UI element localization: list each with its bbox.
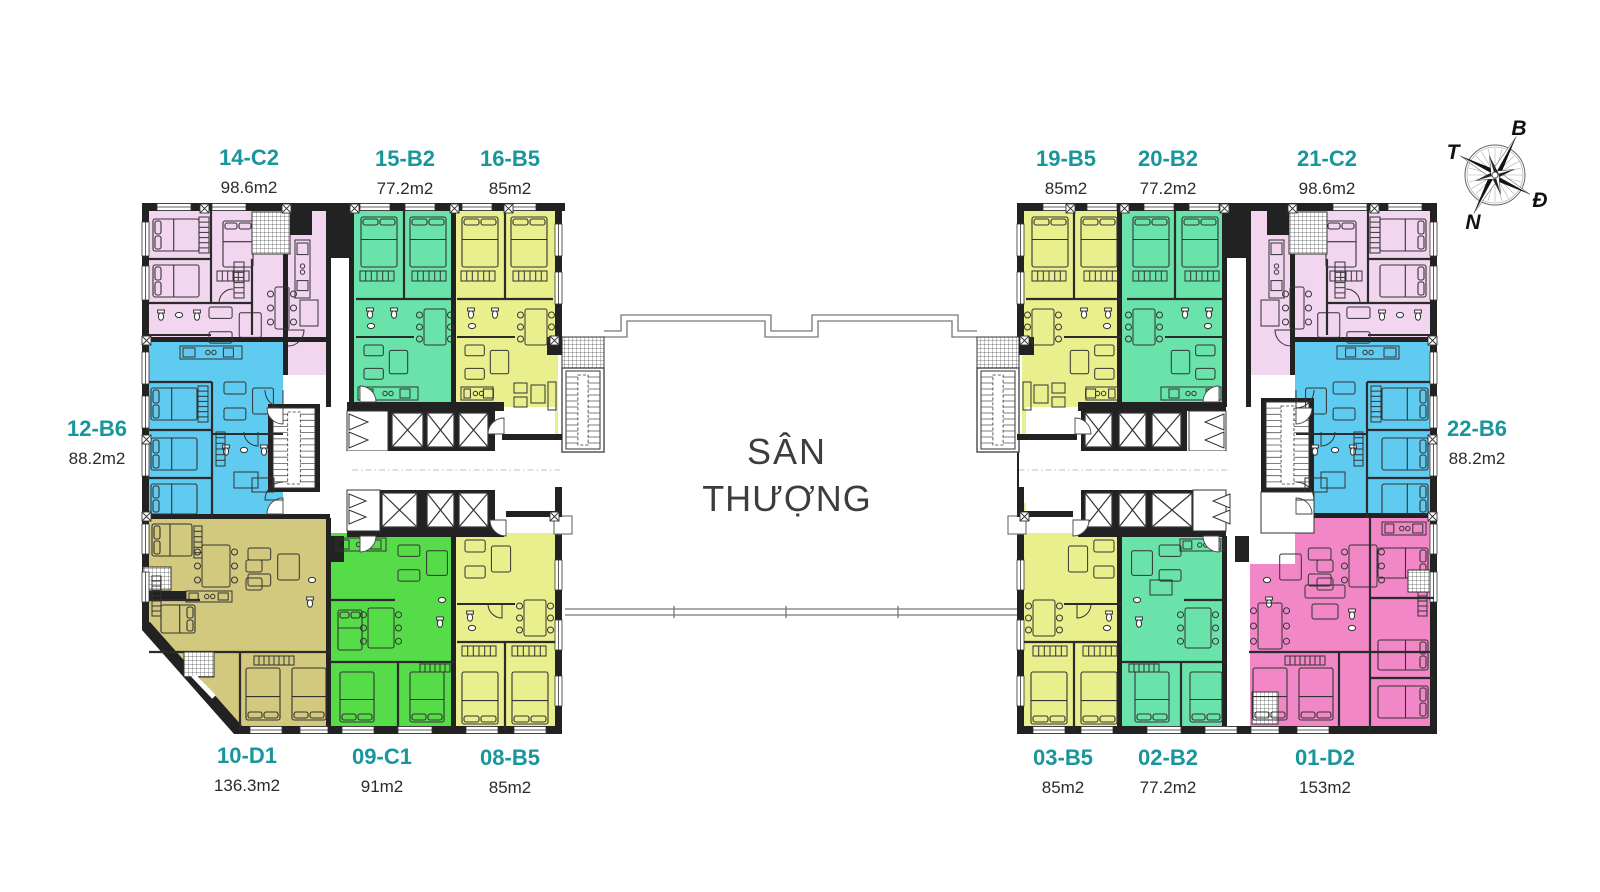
- svg-text:22-B6: 22-B6: [1447, 416, 1507, 441]
- svg-text:14-C2: 14-C2: [219, 145, 279, 170]
- svg-text:88.2m2: 88.2m2: [69, 449, 126, 468]
- svg-text:98.6m2: 98.6m2: [1299, 179, 1356, 198]
- svg-text:85m2: 85m2: [489, 778, 532, 797]
- svg-text:01-D2: 01-D2: [1295, 745, 1355, 770]
- svg-text:21-C2: 21-C2: [1297, 146, 1357, 171]
- svg-text:88.2m2: 88.2m2: [1449, 449, 1506, 468]
- svg-text:THƯỢNG: THƯỢNG: [702, 478, 872, 519]
- svg-text:12-B6: 12-B6: [67, 416, 127, 441]
- svg-text:85m2: 85m2: [1045, 179, 1088, 198]
- svg-text:B: B: [1511, 117, 1526, 140]
- svg-text:77.2m2: 77.2m2: [1140, 179, 1197, 198]
- svg-text:136.3m2: 136.3m2: [214, 776, 280, 795]
- svg-text:08-B5: 08-B5: [480, 745, 540, 770]
- svg-text:N: N: [1465, 211, 1481, 234]
- svg-text:SÂN: SÂN: [747, 431, 827, 472]
- svg-text:T: T: [1447, 141, 1462, 164]
- svg-text:Đ: Đ: [1532, 189, 1547, 212]
- svg-text:03-B5: 03-B5: [1033, 745, 1093, 770]
- svg-text:85m2: 85m2: [489, 179, 532, 198]
- svg-text:77.2m2: 77.2m2: [377, 179, 434, 198]
- svg-text:98.6m2: 98.6m2: [221, 178, 278, 197]
- svg-text:77.2m2: 77.2m2: [1140, 778, 1197, 797]
- svg-text:20-B2: 20-B2: [1138, 146, 1198, 171]
- svg-text:02-B2: 02-B2: [1138, 745, 1198, 770]
- svg-text:09-C1: 09-C1: [352, 744, 412, 769]
- svg-text:19-B5: 19-B5: [1036, 146, 1096, 171]
- svg-text:153m2: 153m2: [1299, 778, 1351, 797]
- svg-text:10-D1: 10-D1: [217, 743, 277, 768]
- svg-text:91m2: 91m2: [361, 777, 404, 796]
- svg-text:16-B5: 16-B5: [480, 146, 540, 171]
- svg-text:15-B2: 15-B2: [375, 146, 435, 171]
- svg-text:85m2: 85m2: [1042, 778, 1085, 797]
